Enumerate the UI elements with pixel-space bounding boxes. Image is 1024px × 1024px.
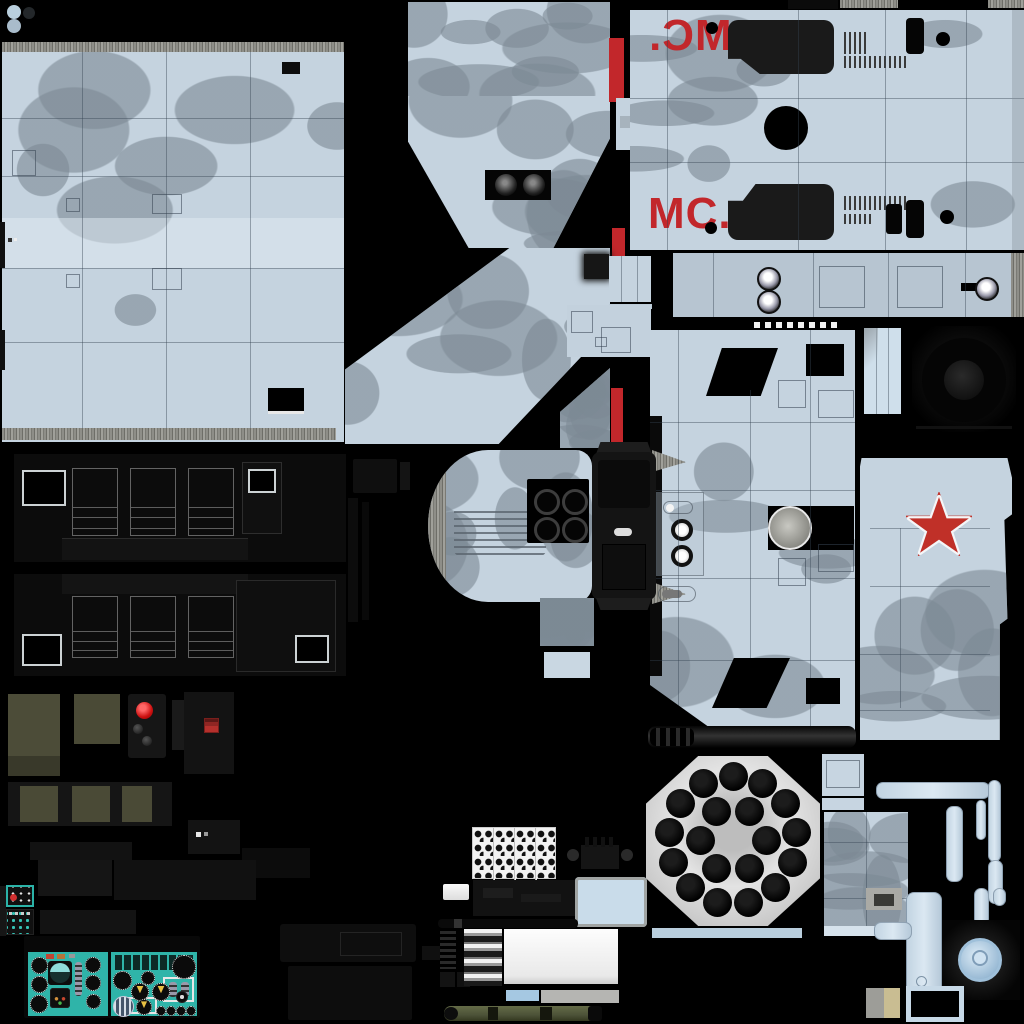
- warning-light: [57, 954, 65, 959]
- round-lamp: [671, 519, 693, 541]
- rocket-tube: [703, 888, 732, 917]
- gauge: [30, 995, 48, 1013]
- rocket-tube: [752, 826, 781, 855]
- exhaust-fairing: [728, 184, 834, 240]
- pod-side-panel: [824, 812, 908, 936]
- fuselage-code-mirrored: МС.: [648, 18, 732, 54]
- detail-panel: [656, 492, 704, 576]
- rack-frame: [72, 596, 118, 658]
- gauge: [176, 1006, 186, 1016]
- placard-panel: [184, 692, 234, 774]
- exhaust-fairing: [728, 20, 834, 74]
- vent-grille: [844, 214, 874, 224]
- fuselage-code: МС.: [648, 196, 732, 232]
- perforated-plate: [472, 827, 556, 879]
- port-hole: [940, 210, 954, 224]
- gauge: [152, 983, 170, 1001]
- handle-pill: [614, 528, 632, 536]
- fuselage-side-panel: [2, 42, 344, 442]
- keypad-module: [6, 885, 34, 907]
- gauge: [75, 962, 82, 996]
- ammo-row: [8, 782, 172, 826]
- rack-frame: [72, 468, 118, 536]
- star-panel: [860, 458, 1012, 740]
- intake-cover: [886, 204, 902, 234]
- fuselage-code-panel: МС. МС.: [630, 10, 1024, 250]
- rotor-hub-disc: [912, 326, 1016, 432]
- warning-placard: [204, 718, 219, 733]
- rivet: [757, 290, 781, 314]
- texture-atlas-sheet: МС. МС.: [0, 0, 1024, 1024]
- warning-light: [69, 954, 75, 958]
- panel-edge-texture: [2, 42, 344, 52]
- rotor-blade-strip: [864, 328, 901, 414]
- gauge: [113, 996, 134, 1017]
- strut-bar: [993, 888, 1006, 906]
- seat-back: [592, 452, 656, 600]
- blue-knob: [972, 950, 988, 966]
- edge-tab: [0, 330, 5, 370]
- connector-block: [188, 820, 240, 854]
- palette-dot: [23, 7, 35, 19]
- rocket-tube: [666, 789, 695, 818]
- rocket-tube: [719, 762, 748, 791]
- canopy-window: [806, 344, 844, 376]
- red-star-insignia: [906, 492, 972, 556]
- rocket-tube: [676, 873, 705, 902]
- gauge: [172, 955, 196, 979]
- intake-cover: [906, 18, 924, 54]
- round-lamp: [671, 545, 693, 567]
- frame-tube: [874, 922, 912, 940]
- tail-panel-top: [408, 2, 610, 96]
- rocket-tube: [659, 848, 688, 877]
- exhaust-pipe: [534, 489, 560, 515]
- red-strip: [612, 228, 625, 256]
- port-hole: [936, 32, 950, 46]
- door-panel: [567, 305, 651, 357]
- mount-bracket: [563, 837, 637, 873]
- panel-edge-texture: [2, 428, 336, 440]
- gauge: [86, 994, 101, 1009]
- rack-frame: [130, 596, 176, 658]
- rocket-tube: [686, 826, 715, 855]
- palette-dot: [7, 19, 21, 33]
- display-window: [248, 469, 276, 493]
- rocket-tube: [778, 848, 807, 877]
- instrument-panel-left: [28, 952, 108, 1016]
- rocket-tube: [735, 797, 764, 826]
- gauge: [113, 971, 132, 990]
- edge-tab: [0, 222, 5, 268]
- toggle-knob: [133, 724, 143, 734]
- exhaust-pipe: [562, 517, 588, 543]
- rocket-tube: [735, 854, 764, 883]
- hollow-frame: [906, 986, 964, 1022]
- port-hole: [705, 222, 717, 234]
- rocket-tube: [702, 854, 731, 883]
- small-panel: [609, 256, 651, 302]
- rocket-tube: [689, 769, 718, 798]
- console-strip: [14, 454, 346, 562]
- gauge: [166, 1006, 176, 1016]
- intake-dome: [768, 506, 812, 550]
- pod-side-box: [822, 754, 864, 796]
- ammo-box: [74, 694, 120, 744]
- keypad-module: [6, 909, 34, 935]
- avionics-box: [352, 458, 398, 494]
- gauge: [85, 957, 101, 973]
- window-cutout: [268, 388, 304, 414]
- display-window: [22, 634, 62, 666]
- warning-light: [46, 954, 54, 959]
- hinge-wedge: [652, 450, 686, 472]
- port-hole: [706, 22, 718, 34]
- rack-frame: [130, 468, 176, 536]
- intake-cover: [906, 200, 924, 238]
- red-strip: [611, 388, 623, 444]
- gauge: [50, 988, 70, 1008]
- rocket-tube: [782, 818, 811, 847]
- rocket-tube-side: [444, 1006, 602, 1021]
- gauge: [85, 975, 101, 991]
- canopy-window: [806, 678, 840, 704]
- exhaust-cluster: [527, 479, 589, 543]
- cowl-sub-panel: [540, 598, 594, 646]
- strut-bar: [976, 800, 986, 840]
- light-dome: [495, 174, 517, 196]
- gun-barrel: [648, 726, 856, 748]
- rocket-tube: [655, 818, 684, 847]
- gauge: [186, 1006, 196, 1016]
- gauge: [48, 961, 72, 985]
- spine-strip: [673, 253, 1024, 317]
- nav-light-housing: [485, 170, 551, 200]
- console-strip: [14, 574, 346, 676]
- display-window: [22, 470, 66, 506]
- switch-block: [128, 694, 166, 758]
- canopy-window: [706, 348, 778, 396]
- rocket-tube: [761, 873, 790, 902]
- canopy-panel: [650, 330, 855, 735]
- red-indicator: [10, 894, 17, 901]
- rocket-tube: [771, 789, 800, 818]
- rack-frame: [188, 596, 234, 658]
- light-band: [2, 218, 344, 268]
- soft-shadow-plate: [584, 254, 609, 279]
- tail-wedge: [560, 368, 610, 448]
- hub-hole: [764, 106, 808, 150]
- piston-ribs: [464, 929, 502, 986]
- toggle-knob: [142, 736, 152, 746]
- gauge: [156, 1006, 166, 1016]
- gauge: [131, 983, 149, 1001]
- gauge: [31, 976, 48, 993]
- strut-bar: [988, 780, 1001, 862]
- armored-glass-block: [575, 877, 647, 927]
- exhaust-pipe: [562, 489, 588, 515]
- strut-bar: [876, 782, 990, 799]
- rocket-pod-face: [646, 756, 820, 926]
- gauge: [136, 999, 152, 1015]
- rivet: [757, 267, 781, 291]
- canopy-window: [712, 658, 790, 708]
- exhaust-pipe: [534, 517, 560, 543]
- white-plate: [504, 929, 618, 984]
- gauge: [176, 991, 188, 1003]
- rocket-tube: [702, 797, 731, 826]
- blue-knob-ring: [958, 938, 1002, 982]
- ribbed-block: [438, 931, 458, 969]
- rocket-tube: [748, 769, 777, 798]
- access-hatch: [282, 62, 300, 74]
- ammo-box: [8, 694, 60, 776]
- instrument-panel-right: [111, 952, 197, 1016]
- vent-grille: [844, 56, 906, 68]
- red-strip: [609, 38, 624, 102]
- vent-grille: [844, 32, 866, 54]
- rocket-tube: [734, 888, 763, 917]
- bolt-head: [975, 277, 999, 301]
- strut-bar: [946, 806, 963, 882]
- rack-frame: [188, 468, 234, 536]
- display-window: [295, 635, 329, 663]
- red-button: [136, 702, 153, 719]
- palette-dot: [7, 5, 21, 19]
- light-dome: [523, 174, 545, 196]
- gauge: [31, 957, 48, 974]
